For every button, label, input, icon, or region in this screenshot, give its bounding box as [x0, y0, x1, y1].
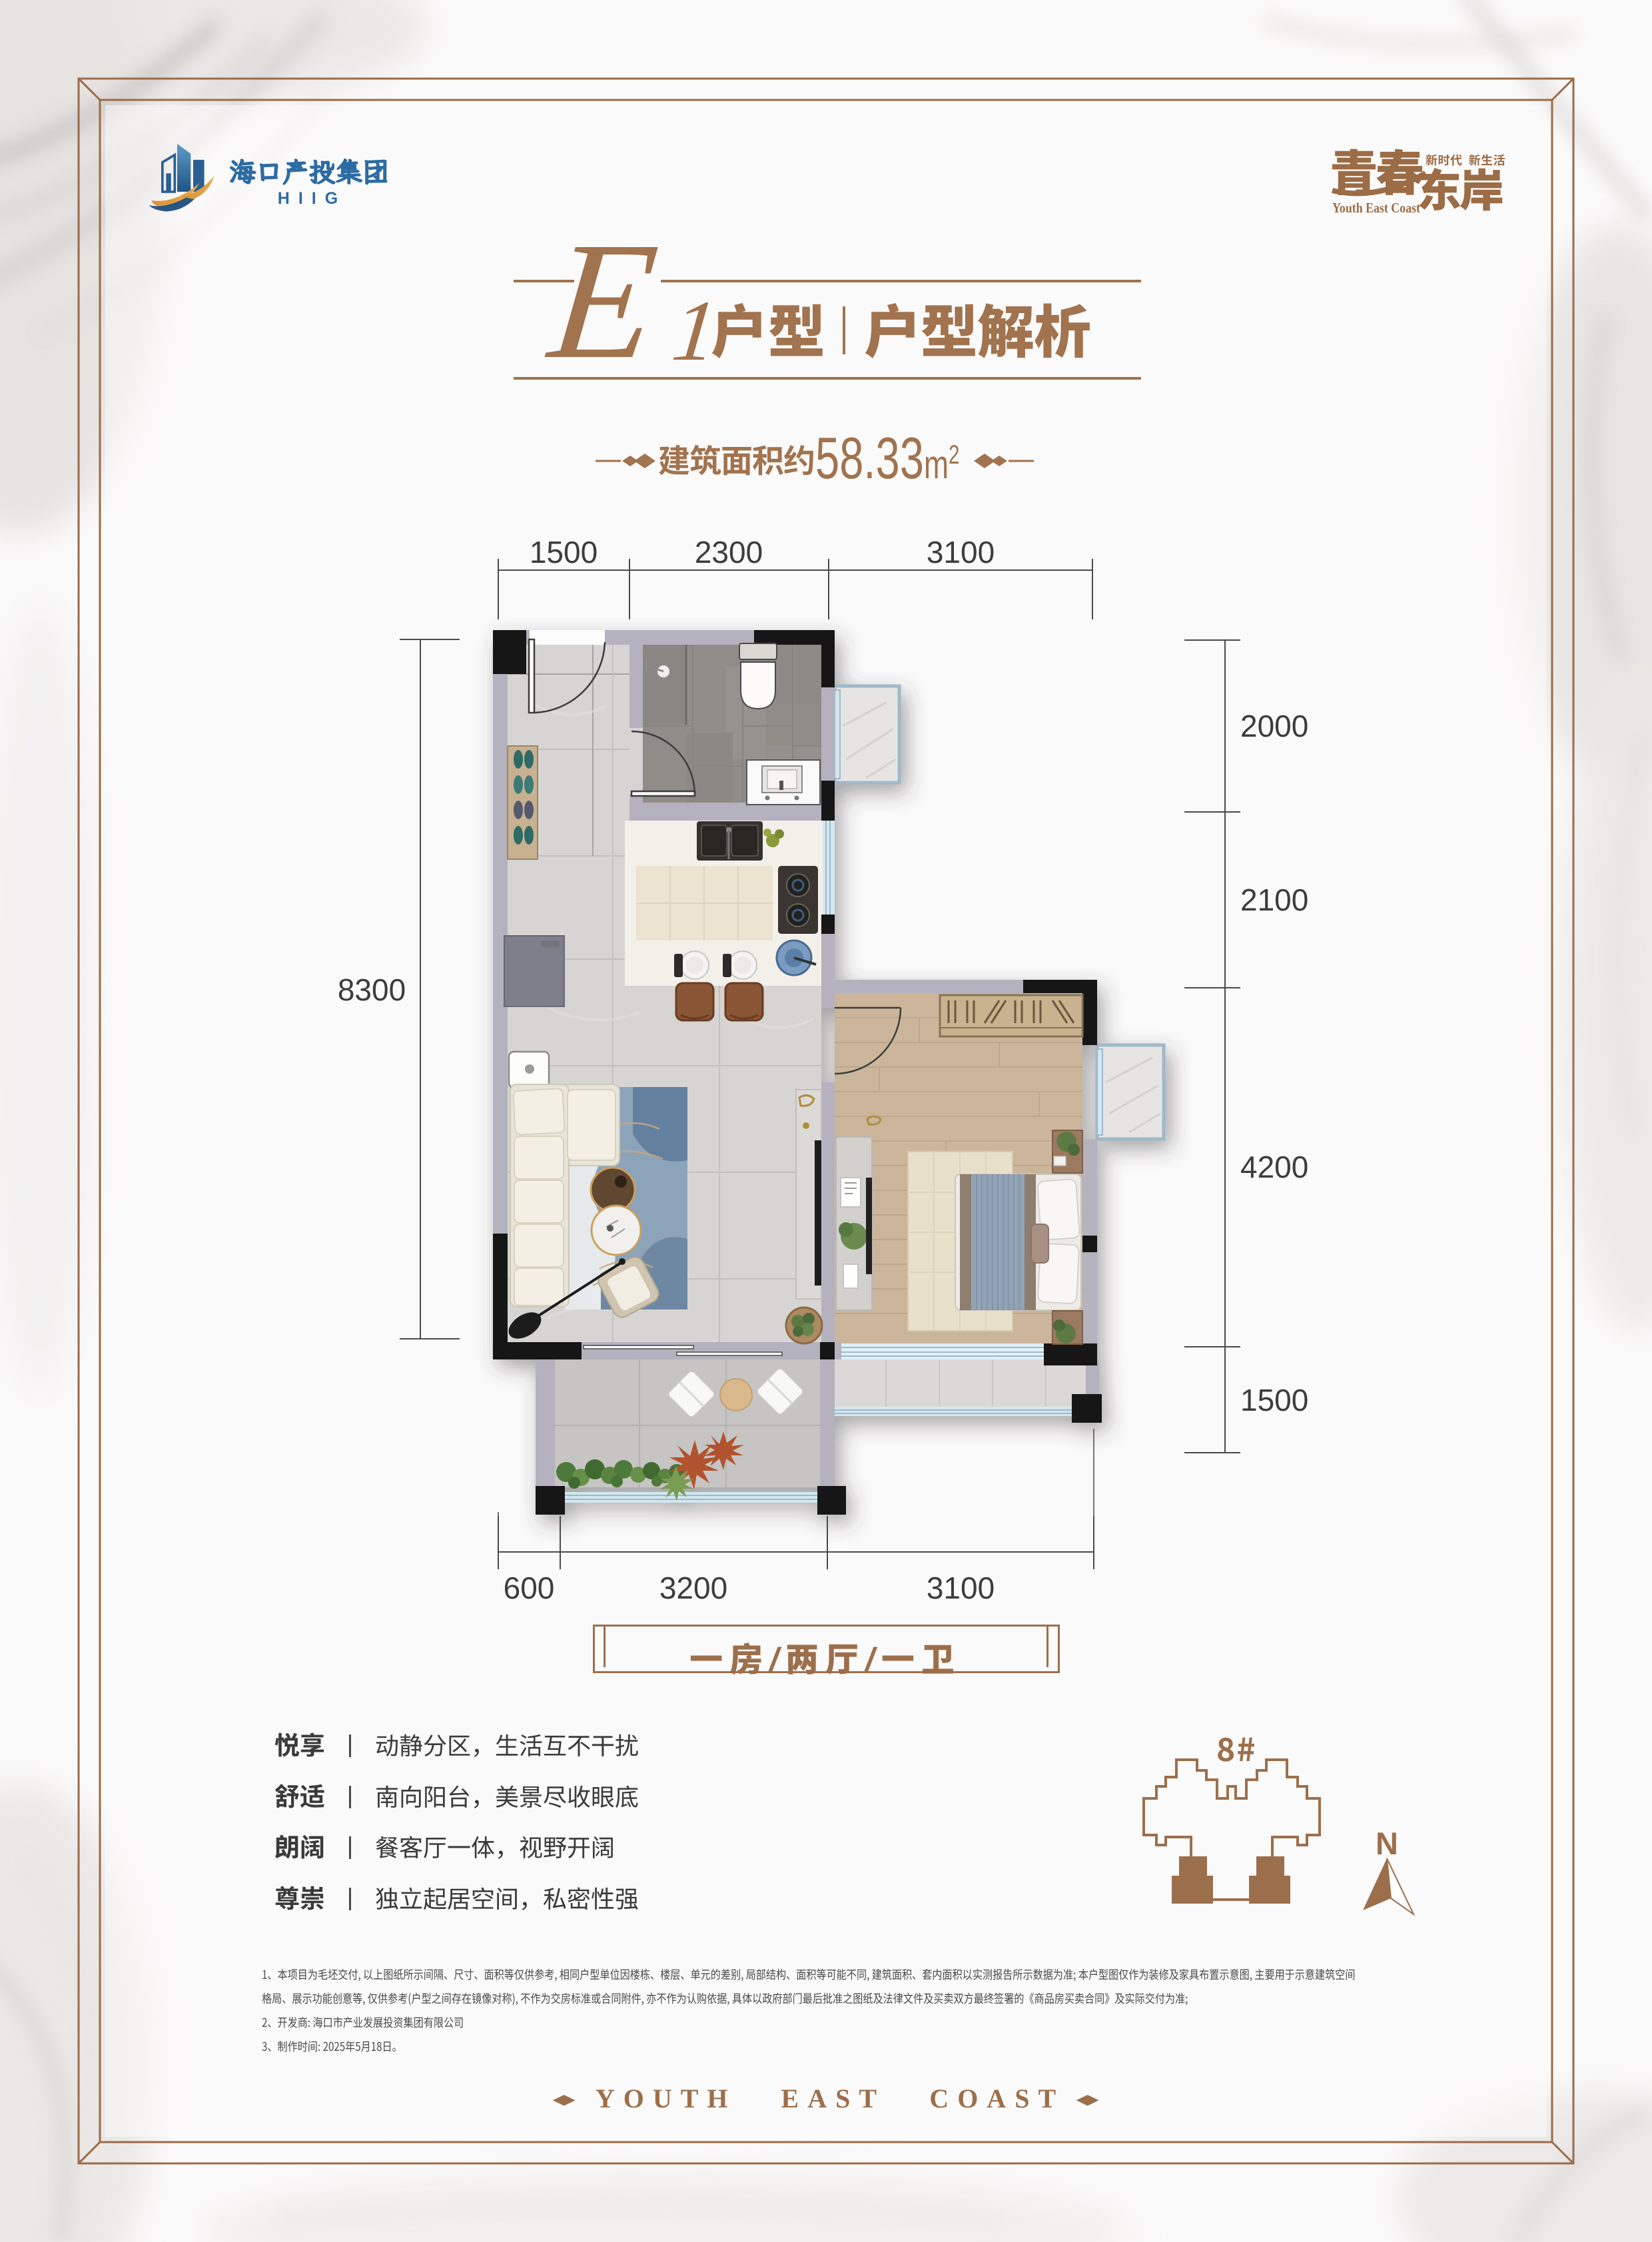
svg-text:3100: 3100: [927, 1571, 995, 1605]
svg-text:2000: 2000: [1240, 709, 1308, 743]
svg-text:3200: 3200: [659, 1571, 727, 1605]
svg-text:4200: 4200: [1240, 1150, 1308, 1184]
svg-text:1500: 1500: [530, 535, 598, 569]
svg-text:600: 600: [504, 1571, 555, 1605]
svg-text:1500: 1500: [1240, 1383, 1308, 1417]
svg-text:E: E: [541, 233, 665, 394]
svg-text:2300: 2300: [695, 535, 763, 569]
svg-text:3100: 3100: [927, 535, 995, 569]
svg-text:N: N: [1376, 1826, 1398, 1861]
svg-text:2100: 2100: [1240, 883, 1308, 917]
svg-text:8300: 8300: [338, 972, 406, 1007]
